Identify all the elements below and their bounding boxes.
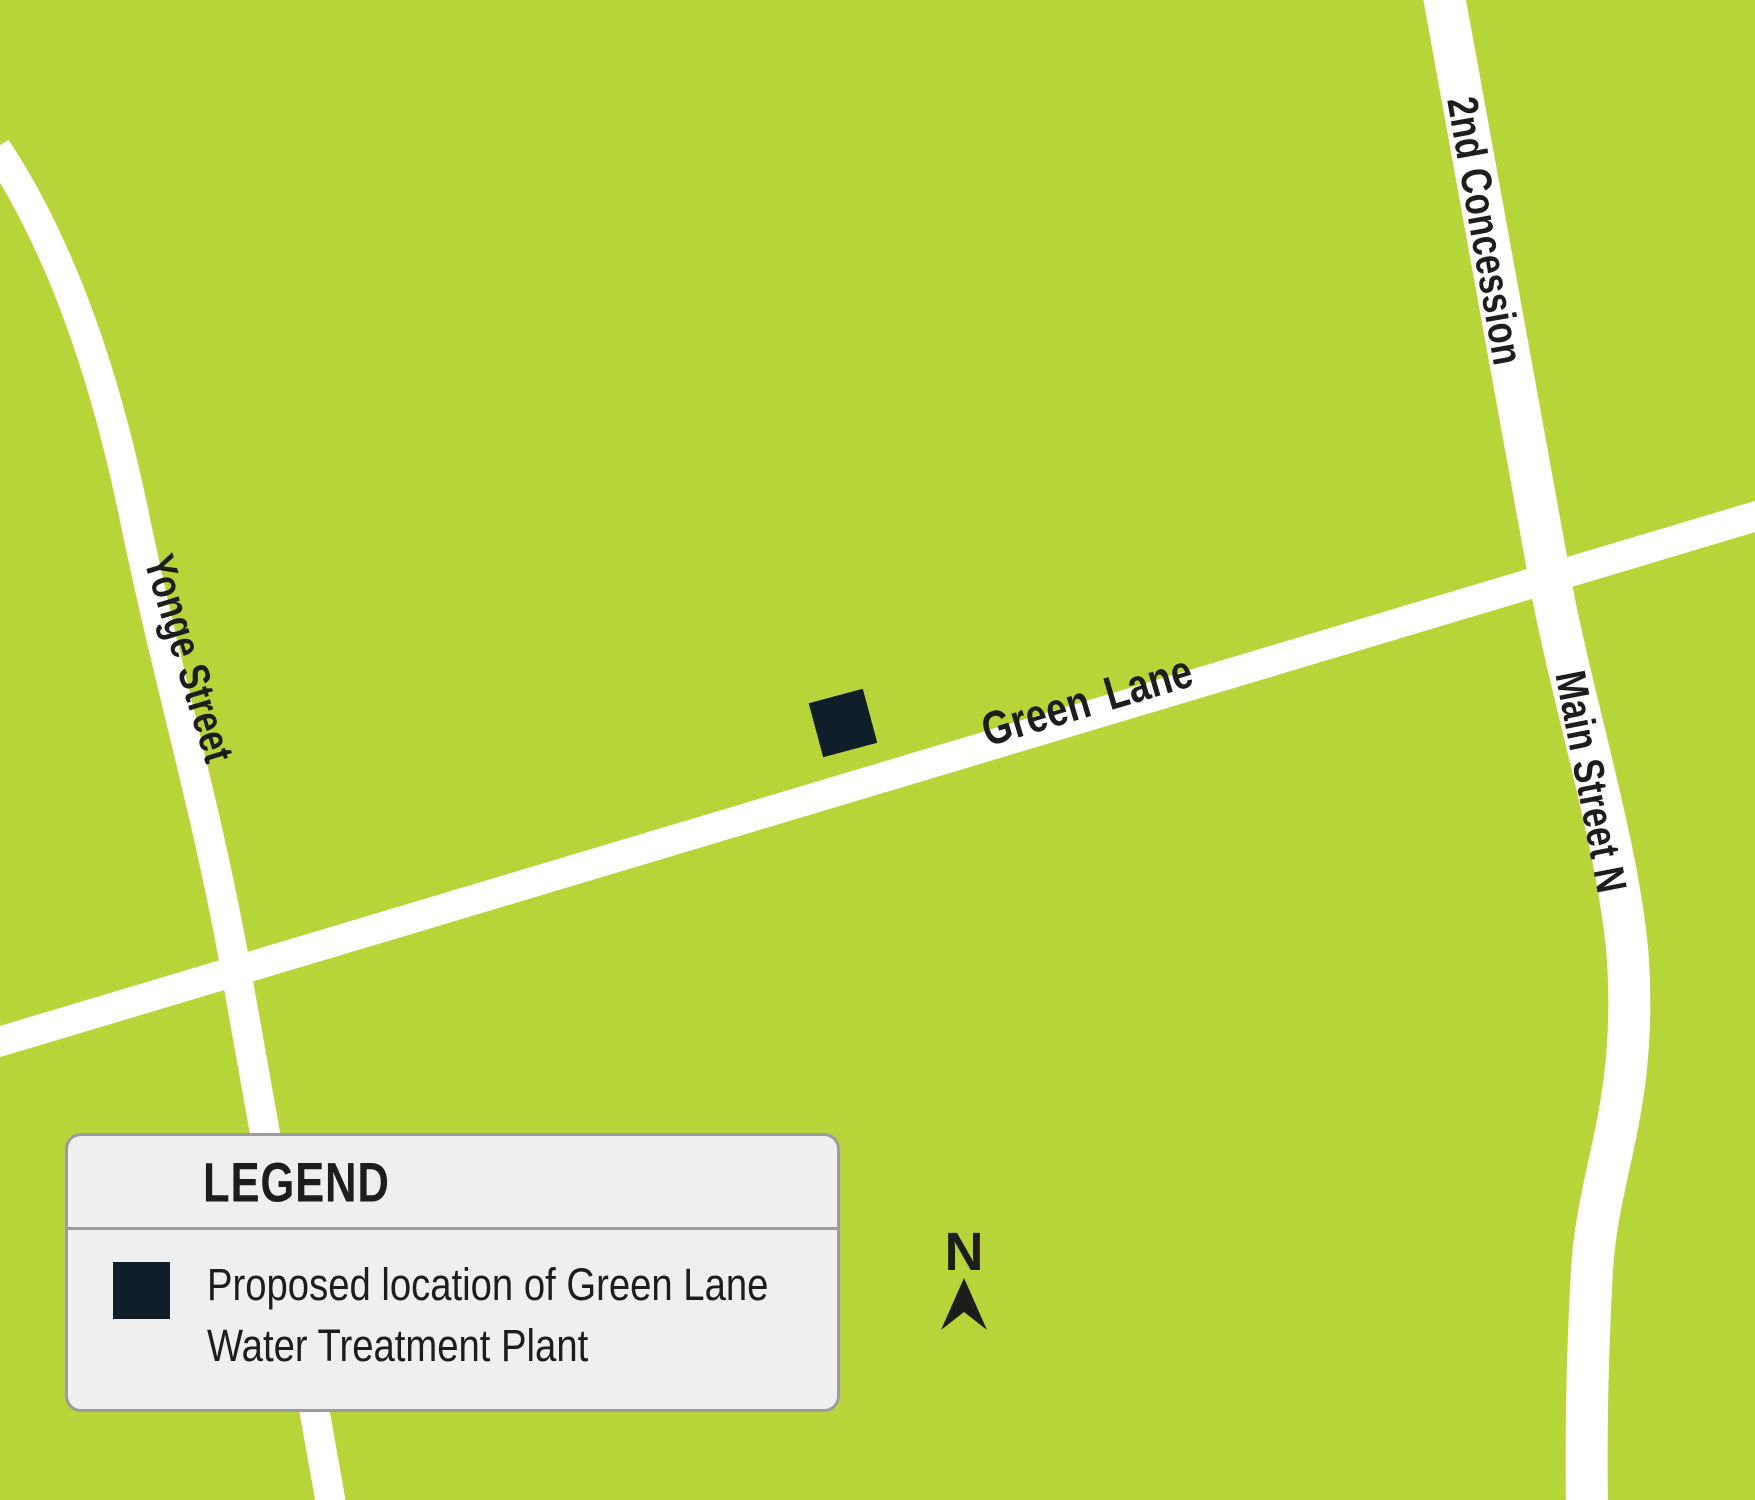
legend-header: LEGEND	[68, 1136, 837, 1230]
legend-box: LEGEND Proposed location of Green Lane W…	[65, 1133, 840, 1412]
north-label: N	[941, 1228, 987, 1276]
legend-marker-swatch	[113, 1262, 170, 1319]
map-canvas: Yonge Street Green Lane 2nd Concession M…	[0, 0, 1755, 1500]
legend-item-label-line2: Water Treatment Plant	[207, 1315, 768, 1376]
legend-title: LEGEND	[203, 1149, 390, 1214]
road-green-lane	[0, 512, 1755, 1046]
legend-body: Proposed location of Green Lane Water Tr…	[68, 1230, 837, 1412]
legend-item-label: Proposed location of Green Lane Water Tr…	[207, 1254, 768, 1376]
north-compass: N	[941, 1228, 987, 1330]
legend-item-label-line1: Proposed location of Green Lane	[207, 1254, 768, 1315]
north-arrow-icon	[941, 1278, 987, 1330]
